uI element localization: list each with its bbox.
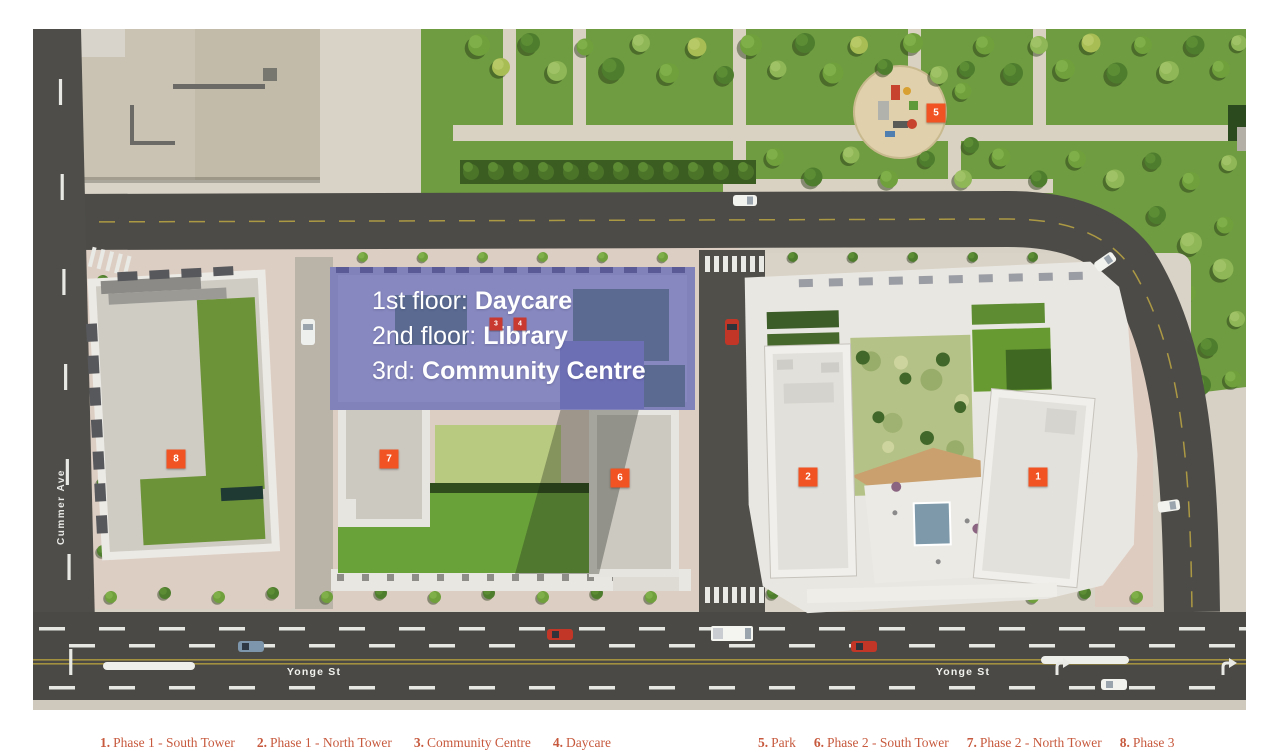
floor-overlay-text: 1st floor: Daycare 2nd floor: Library 3r… [372, 284, 646, 389]
marker-3-community-centre: 3 [490, 318, 503, 331]
marker-6-phase2-south-tower: 6 [611, 469, 630, 488]
street-label-yonge-right: Yonge St [936, 666, 990, 678]
legend-item: 3.Community Centre [414, 735, 531, 751]
marker-4-daycare: 4 [514, 318, 527, 331]
west-driveway [295, 257, 333, 609]
hedge-row [460, 160, 756, 184]
overlay-line-3: 3rd: Community Centre [372, 354, 646, 389]
legend-item: 4.Daycare [553, 735, 611, 751]
site-plan-page: Cummer Ave Yonge St Yonge St 1st floor: … [0, 0, 1280, 756]
phase3-building [83, 264, 280, 560]
street-label-cummer: Cummer Ave [56, 469, 67, 545]
existing-building [70, 29, 320, 183]
legend-group-left: 1.Phase 1 - South Tower 2.Phase 1 - Nort… [100, 735, 611, 751]
marker-7-phase2-north-tower: 7 [380, 450, 399, 469]
south-sidewalk [33, 700, 1246, 710]
legend-item: 8.Phase 3 [1120, 735, 1175, 751]
phase1-north-tower [765, 344, 857, 578]
marker-8-phase3: 8 [167, 450, 186, 469]
legend-item: 1.Phase 1 - South Tower [100, 735, 235, 751]
legend-item: 5.Park [758, 735, 796, 751]
legend-item: 6.Phase 2 - South Tower [814, 735, 949, 751]
street-label-yonge-left: Yonge St [287, 666, 341, 678]
phase1-south-tower [973, 389, 1095, 588]
legend-item: 7.Phase 2 - North Tower [967, 735, 1102, 751]
marker-5-park: 5 [927, 104, 946, 123]
marker-1-phase1-south-tower: 1 [1029, 468, 1048, 487]
legend-group-right: 5.Park 6.Phase 2 - South Tower 7.Phase 2… [758, 735, 1174, 751]
legend-item: 2.Phase 1 - North Tower [257, 735, 392, 751]
overlay-line-1: 1st floor: Daycare [372, 284, 646, 319]
phase1-block [743, 261, 1142, 615]
marker-2-phase1-north-tower: 2 [799, 468, 818, 487]
overlay-line-2: 2nd floor: Library [372, 319, 646, 354]
pool [914, 502, 951, 545]
legend: 1.Phase 1 - South Tower 2.Phase 1 - Nort… [0, 735, 1280, 753]
